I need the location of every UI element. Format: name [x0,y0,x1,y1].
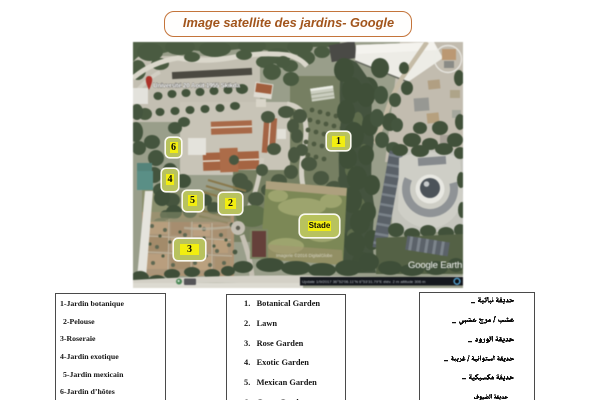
svg-text:Google Earth: Google Earth [408,260,462,271]
svg-text:Imagerie ©2016 DigitalGlobe: Imagerie ©2016 DigitalGlobe [276,253,333,258]
svg-text:Update 1/9/2017 36°52'06.11"N: Update 1/9/2017 36°52'06.11"N 6°53'31.79… [302,279,426,284]
svg-text:Université 20 Août 1955 Skikda: Université 20 Août 1955 Skikda [153,83,240,90]
